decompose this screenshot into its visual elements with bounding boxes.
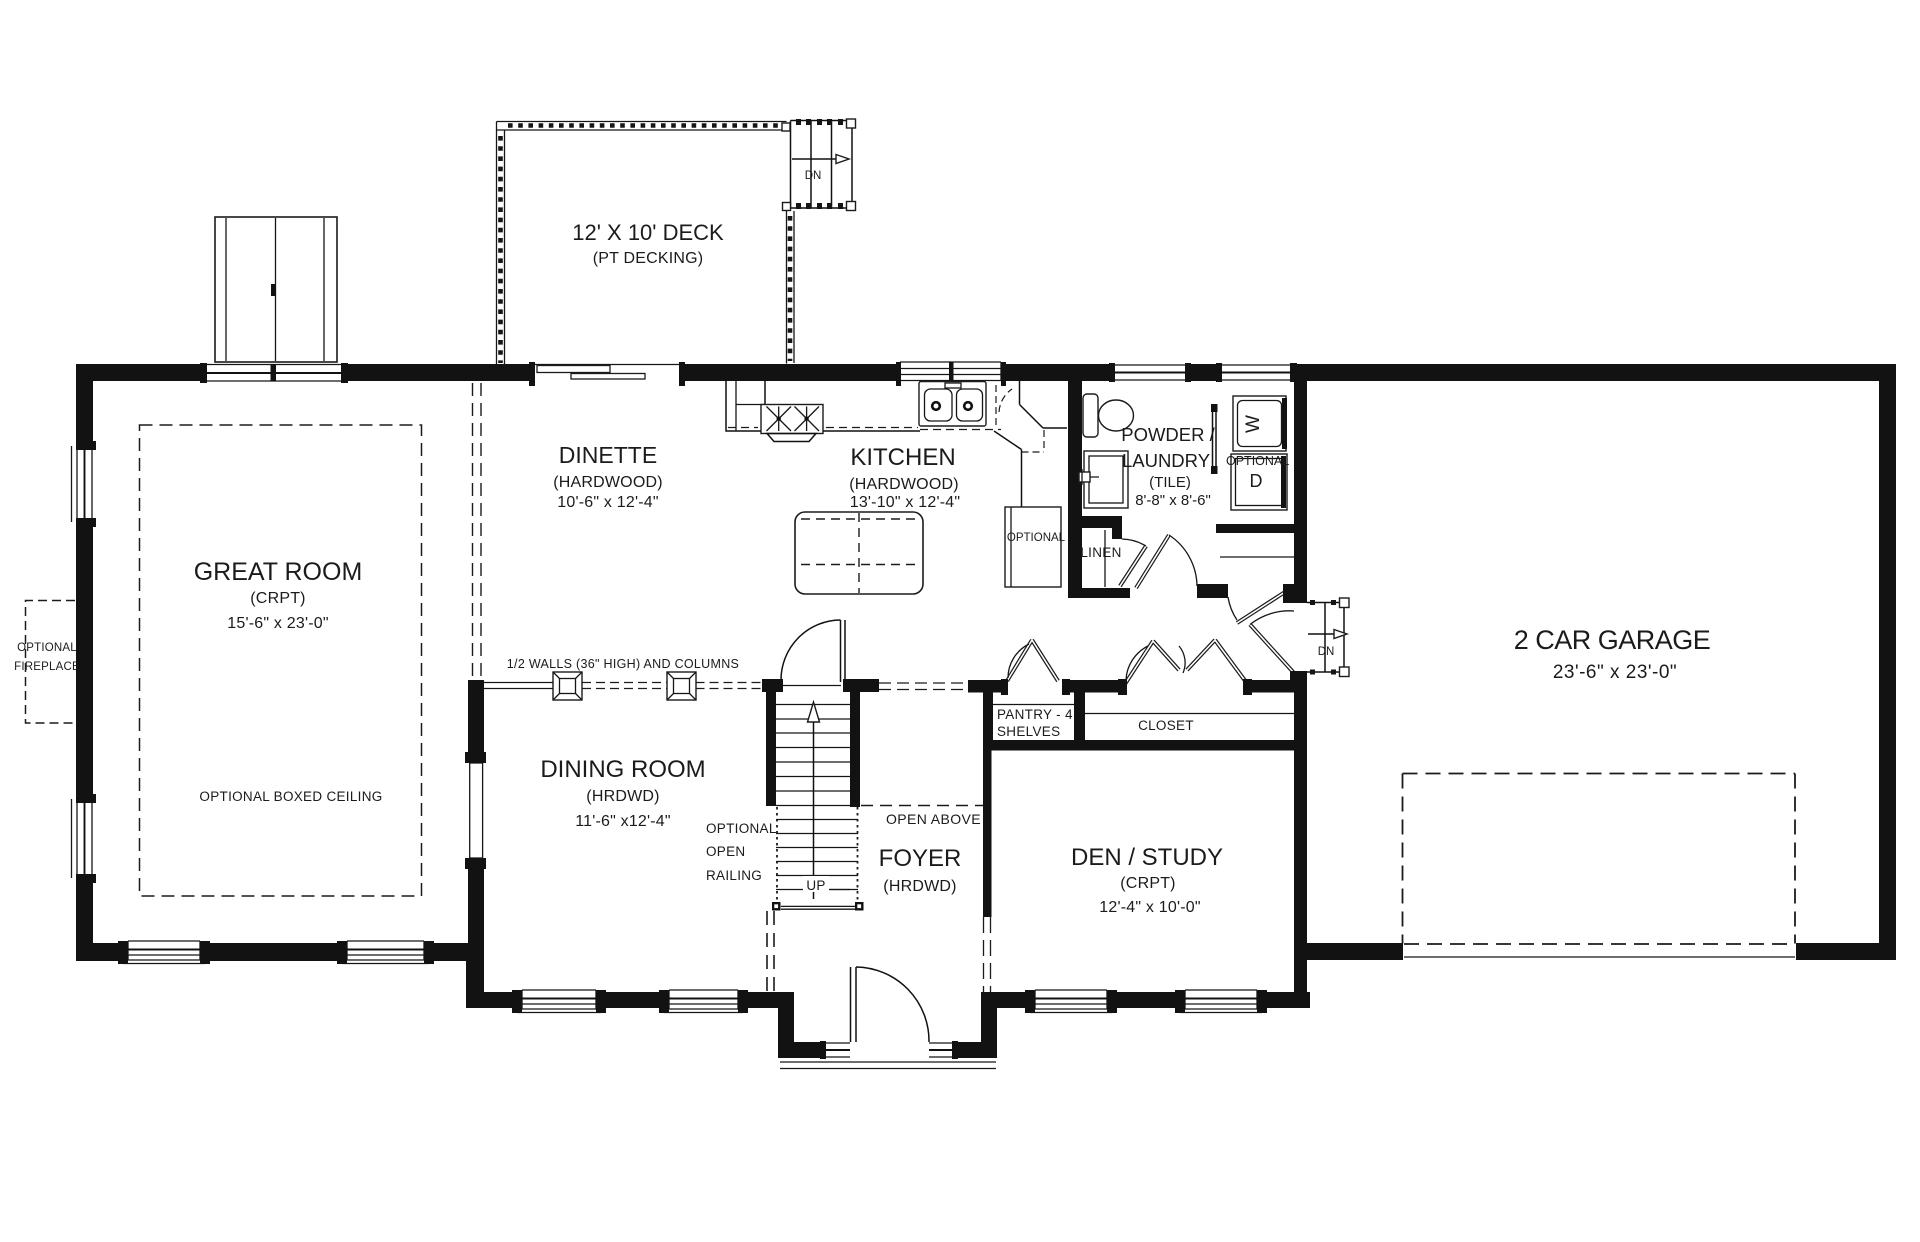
svg-text:(TILE): (TILE) <box>1149 474 1191 491</box>
svg-text:LAUNDRY: LAUNDRY <box>1122 450 1210 471</box>
svg-text:OPTIONAL: OPTIONAL <box>1226 454 1289 468</box>
svg-text:(HRDWD): (HRDWD) <box>883 878 956 895</box>
svg-text:23'-6" x 23'-0": 23'-6" x 23'-0" <box>1553 662 1677 683</box>
svg-text:FIREPLACE: FIREPLACE <box>14 661 80 673</box>
svg-text:OPTIONAL BOXED CEILING: OPTIONAL BOXED CEILING <box>199 789 382 804</box>
svg-text:GREAT ROOM: GREAT ROOM <box>194 558 363 586</box>
svg-text:11'-6" x12'-4": 11'-6" x12'-4" <box>575 813 671 830</box>
svg-text:OPTIONAL: OPTIONAL <box>1007 532 1066 544</box>
svg-text:15'-6" x 23'-0": 15'-6" x 23'-0" <box>227 615 328 632</box>
svg-text:(CRPT): (CRPT) <box>250 590 305 607</box>
svg-text:12'-4" x 10'-0": 12'-4" x 10'-0" <box>1099 899 1200 916</box>
svg-text:CLOSET: CLOSET <box>1138 718 1194 733</box>
svg-text:RAILING: RAILING <box>706 868 762 883</box>
svg-text:DN: DN <box>805 170 822 182</box>
svg-text:12' X 10' DECK: 12' X 10' DECK <box>572 220 724 245</box>
svg-text:DEN / STUDY: DEN / STUDY <box>1071 844 1223 871</box>
svg-text:DINETTE: DINETTE <box>559 442 657 468</box>
svg-text:FOYER: FOYER <box>879 845 962 872</box>
svg-text:OPTIONAL: OPTIONAL <box>706 821 777 836</box>
svg-text:PANTRY - 4: PANTRY - 4 <box>997 707 1073 722</box>
svg-text:OPEN ABOVE: OPEN ABOVE <box>886 811 981 827</box>
svg-text:(HARDWOOD): (HARDWOOD) <box>553 474 663 491</box>
svg-text:OPEN: OPEN <box>706 844 745 859</box>
svg-text:LINEN: LINEN <box>1080 545 1121 560</box>
svg-text:D: D <box>1250 471 1263 491</box>
svg-text:13'-10" x 12'-4": 13'-10" x 12'-4" <box>850 494 961 511</box>
svg-text:POWDER /: POWDER / <box>1121 424 1215 445</box>
svg-text:8'-8" x 8'-6": 8'-8" x 8'-6" <box>1135 492 1211 509</box>
svg-text:(HRDWD): (HRDWD) <box>586 788 659 805</box>
svg-text:DINING ROOM: DINING ROOM <box>540 756 705 783</box>
svg-text:1/2 WALLS (36" HIGH) AND COLUM: 1/2 WALLS (36" HIGH) AND COLUMNS <box>507 657 739 671</box>
svg-text:KITCHEN: KITCHEN <box>850 444 955 471</box>
svg-text:(PT DECKING): (PT DECKING) <box>593 250 704 267</box>
svg-text:2 CAR GARAGE: 2 CAR GARAGE <box>1514 625 1711 655</box>
svg-text:OPTIONAL: OPTIONAL <box>17 642 77 654</box>
svg-text:(HARDWOOD): (HARDWOOD) <box>849 476 959 493</box>
svg-text:SHELVES: SHELVES <box>997 724 1060 739</box>
svg-text:(CRPT): (CRPT) <box>1120 875 1175 892</box>
svg-text:DN: DN <box>1318 646 1335 658</box>
svg-text:10'-6" x 12'-4": 10'-6" x 12'-4" <box>557 494 658 511</box>
svg-text:W: W <box>1243 415 1264 433</box>
svg-text:UP: UP <box>806 878 825 893</box>
